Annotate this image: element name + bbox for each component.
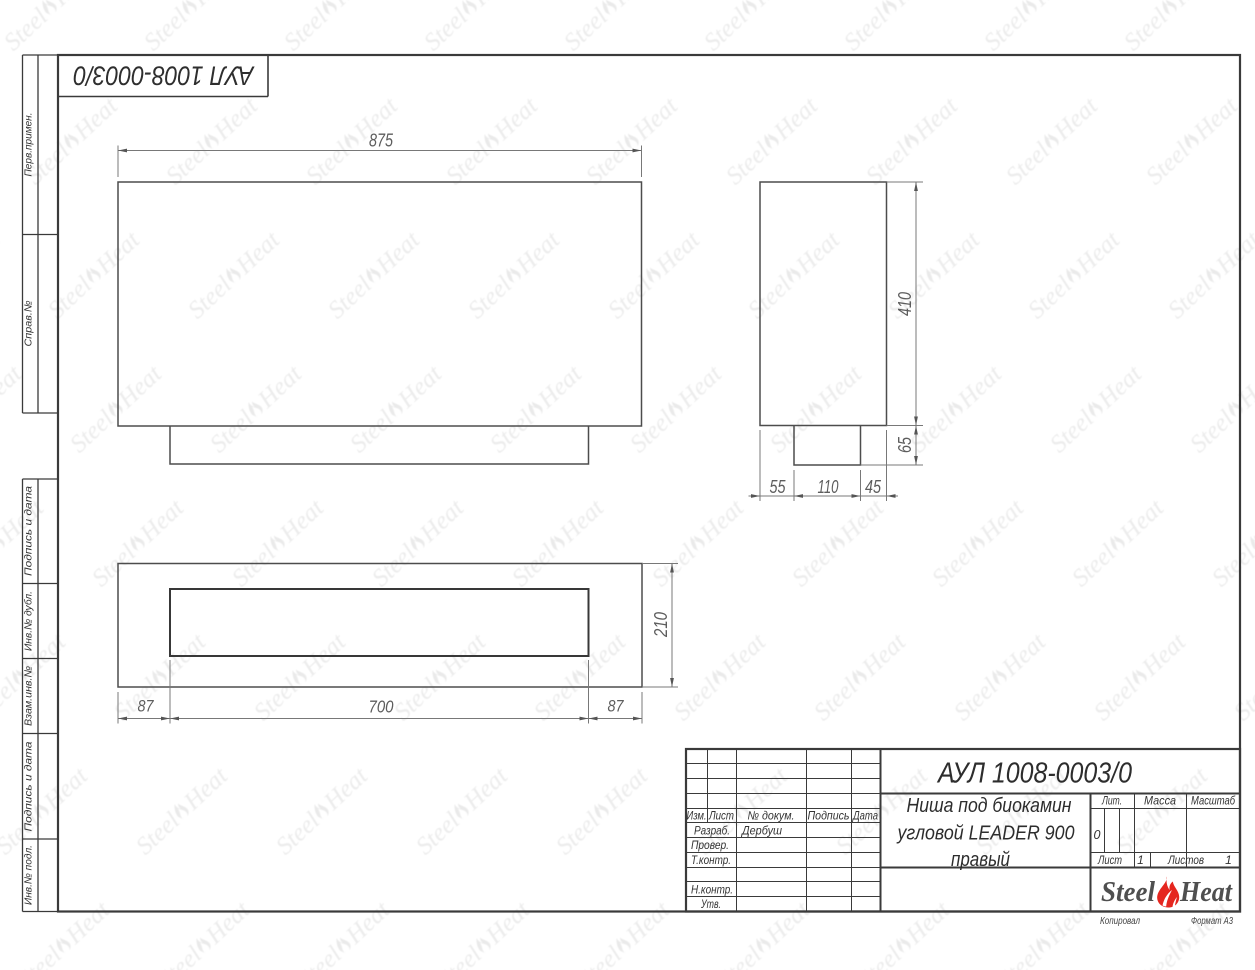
svg-text:Steel: Steel: [1101, 877, 1155, 908]
svg-text:110: 110: [818, 477, 839, 497]
svg-text:210: 210: [651, 612, 671, 638]
svg-text:875: 875: [369, 131, 394, 151]
svg-text:45: 45: [865, 477, 882, 497]
svg-text:0: 0: [1094, 828, 1101, 842]
svg-text:Взам.инв.№: Взам.инв.№: [23, 666, 35, 726]
svg-text:Лит.: Лит.: [1101, 794, 1122, 808]
svg-text:Разраб.: Разраб.: [694, 823, 730, 837]
svg-text:Утв.: Утв.: [700, 897, 721, 911]
svg-text:55: 55: [770, 477, 787, 497]
svg-text:Дата: Дата: [851, 809, 878, 823]
svg-text:угловой LEADER 900: угловой LEADER 900: [896, 823, 1075, 845]
svg-text:Копировал: Копировал: [1100, 916, 1140, 927]
svg-text:Т.контр.: Т.контр.: [691, 853, 731, 867]
svg-text:Дербуш: Дербуш: [740, 823, 782, 837]
svg-text:Лист: Лист: [1097, 855, 1122, 867]
svg-text:Подпись: Подпись: [808, 809, 850, 823]
svg-text:Изм.: Изм.: [687, 809, 707, 823]
svg-text:700: 700: [369, 697, 394, 717]
svg-text:87: 87: [608, 698, 625, 716]
svg-text:Провер.: Провер.: [691, 838, 729, 852]
svg-text:Перв.примен.: Перв.примен.: [23, 113, 35, 177]
svg-text:Н.контр.: Н.контр.: [691, 883, 733, 897]
svg-text:87: 87: [138, 698, 155, 716]
svg-text:65: 65: [895, 436, 915, 453]
svg-text:410: 410: [895, 292, 915, 316]
svg-text:1: 1: [1137, 853, 1144, 867]
svg-text:Подпись и дата: Подпись и дата: [23, 486, 35, 576]
svg-text:№ докум.: № докум.: [748, 809, 795, 823]
svg-text:Формат А3: Формат А3: [1191, 916, 1233, 927]
svg-text:Подпись и дата: Подпись и дата: [23, 741, 35, 831]
svg-text:1: 1: [1225, 853, 1232, 867]
svg-text:Масса: Масса: [1144, 794, 1176, 808]
svg-text:Справ.№: Справ.№: [23, 301, 35, 347]
svg-text:правый: правый: [951, 849, 1010, 871]
svg-text:Ниша под биокамин: Ниша под биокамин: [907, 795, 1072, 817]
svg-text:АУЛ 1008-0003/0: АУЛ 1008-0003/0: [74, 61, 256, 91]
svg-text:Инв.№ дубл.: Инв.№ дубл.: [23, 591, 35, 651]
svg-text:АУЛ 1008-0003/0: АУЛ 1008-0003/0: [936, 758, 1132, 790]
svg-text:Инв.№ подл.: Инв.№ подл.: [23, 845, 35, 905]
svg-text:Масштаб: Масштаб: [1191, 794, 1236, 808]
svg-text:Лист: Лист: [708, 809, 734, 823]
svg-text:Листов: Листов: [1167, 853, 1204, 867]
svg-text:Heat: Heat: [1179, 877, 1233, 908]
